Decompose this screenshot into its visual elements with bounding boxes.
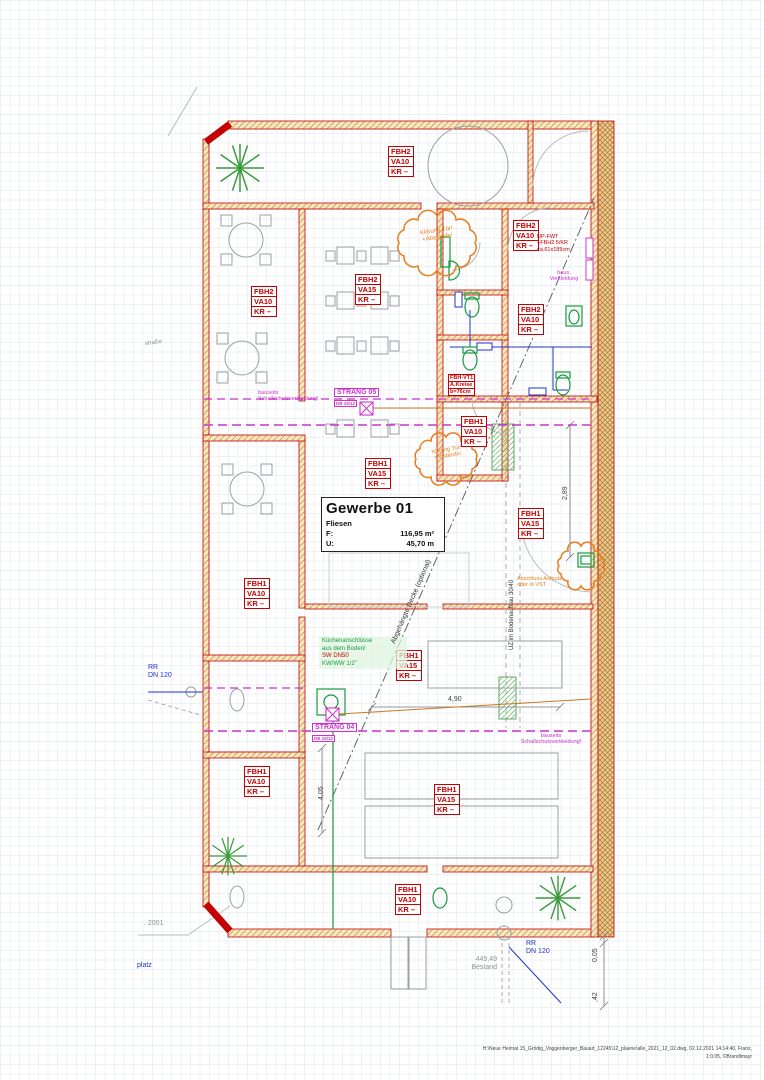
beam-note: UZ im Bodenaufbau 30/40 xyxy=(509,580,516,650)
fbh-label: FBH2VA10KR – xyxy=(388,146,414,177)
strang-04-sub-tag: DB 15/12 xyxy=(312,735,335,742)
room-title-block: Gewerbe 01 Fliesen F:116,95 m² U:45,70 m xyxy=(321,497,445,552)
fbh-label: FBH2VA15KR – xyxy=(355,274,381,305)
upfwt-note: UP-FWT+FBH2 5/KRca.61x185cm xyxy=(537,234,570,253)
fbh-label: FBH2VA10KR – xyxy=(518,304,544,335)
fbh-label: FBH1VA10KR – xyxy=(244,578,270,609)
room-finish: Fliesen xyxy=(326,519,440,528)
fbh-label: FBH2VA10KR – xyxy=(513,220,539,251)
fbh-label: FBH1VA10KR – xyxy=(461,416,487,447)
existing-level-label: 449,49Bestand xyxy=(445,956,497,973)
area-value: 116,95 m² xyxy=(333,529,440,538)
plot-footer: H:\Neue Heimat 15_Grödig_Voggenberger_Ba… xyxy=(412,1046,752,1061)
fbh-label: FBH1VA10KR – xyxy=(244,766,270,797)
soundproofing-note-left: bauseitsSchallschutzverkleidung! xyxy=(258,390,319,403)
facade-cladding xyxy=(598,121,614,937)
platz-label: platz xyxy=(137,962,152,970)
strang-05-tag: STRANG 05 xyxy=(334,388,379,397)
dim-0-05: 0,05 xyxy=(592,948,600,962)
site-number-label: . 2001 xyxy=(144,920,163,928)
rainpipe-label-left: RRDN 120 xyxy=(148,664,172,681)
dim-4-90: 4,90 xyxy=(448,696,462,704)
fbh-label: FBH1VA15KR – xyxy=(434,784,460,815)
dim-2-89: 2,89 xyxy=(562,486,570,500)
shafts xyxy=(492,424,516,719)
perimeter-label: U: xyxy=(326,539,334,548)
fbh-label: FBH1VA15KR – xyxy=(518,508,544,539)
footer-scale: 1:0.05, ©Brandlmayr xyxy=(412,1054,752,1062)
fbh-label: FBH1VA10KR – xyxy=(395,884,421,915)
dim-4-05: 4,05 xyxy=(318,786,326,800)
connection-note: Anschluss Aufputzoder in VST xyxy=(517,576,562,589)
strang-05-sub-tag: DB 15/12 xyxy=(334,400,357,407)
rainpipe-label-bottom: RRDN 120 xyxy=(526,940,550,957)
fbh-label: FBH2VA10KR – xyxy=(251,286,277,317)
dim-42: ,42 xyxy=(592,992,600,1002)
ceiling-outline xyxy=(329,553,469,607)
fbh-vt1-label: FBH-VT1A.Kreiseb=76cm xyxy=(448,374,475,396)
footer-path: H:\Neue Heimat 15_Grödig_Voggenberger_Ba… xyxy=(412,1046,752,1054)
perimeter-value: 45,70 m xyxy=(334,539,440,548)
cladding-note: baus.Verkleidung xyxy=(541,270,587,283)
fbh-label: FBH1VA15KR – xyxy=(365,458,391,489)
wall-chamfers xyxy=(206,124,230,931)
site-lines xyxy=(138,87,230,935)
strang-04-tag: STRANG 04 xyxy=(312,723,357,732)
soundproofing-note-bottom: bauseitsSchallschutzverkleidung! xyxy=(503,733,599,746)
area-label: F: xyxy=(326,529,333,538)
floor-plan-page: Gewerbe 01 Fliesen F:116,95 m² U:45,70 m… xyxy=(0,0,764,1080)
room-name: Gewerbe 01 xyxy=(326,500,440,517)
